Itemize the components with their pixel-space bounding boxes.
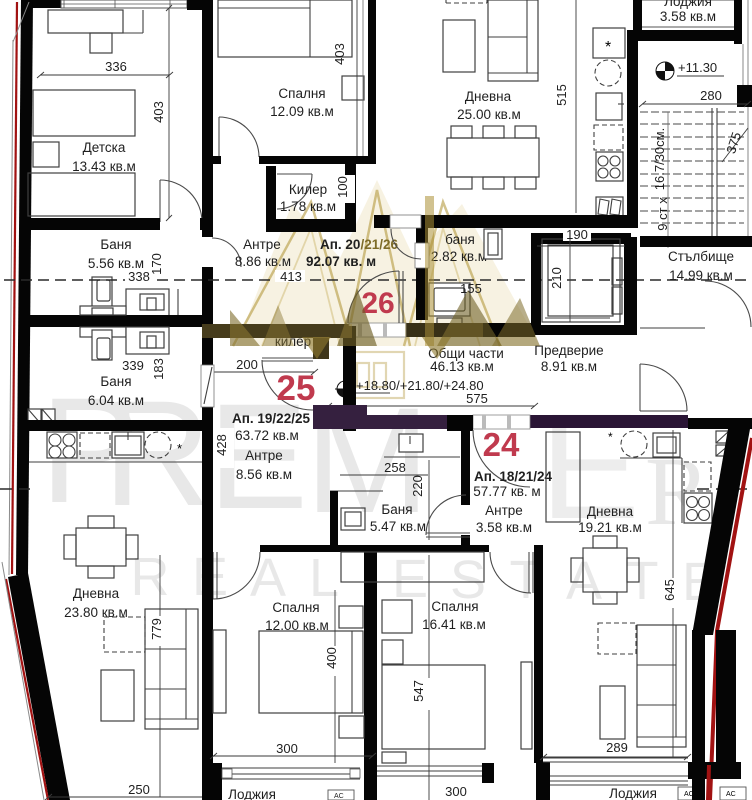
- svg-text:Ап. 20/21/26: Ап. 20/21/26: [320, 237, 398, 252]
- svg-text:8.91 кв.м: 8.91 кв.м: [541, 359, 597, 374]
- svg-text:9 ст x: 9 ст x: [655, 197, 670, 231]
- svg-text:Спалня: Спалня: [431, 599, 478, 614]
- svg-text:5.47 кв.м: 5.47 кв.м: [370, 519, 426, 534]
- svg-text:190: 190: [566, 227, 588, 242]
- svg-text:Спалня: Спалня: [278, 86, 325, 101]
- svg-text:63.72 кв.м: 63.72 кв.м: [235, 428, 299, 443]
- svg-text:19.21 кв.м: 19.21 кв.м: [578, 520, 642, 535]
- svg-text:25: 25: [277, 369, 316, 408]
- svg-text:210: 210: [549, 267, 564, 289]
- svg-text:Стълбище: Стълбище: [668, 249, 734, 264]
- svg-text:428: 428: [214, 434, 229, 456]
- svg-text:*: *: [608, 430, 613, 444]
- svg-text:T: T: [626, 551, 659, 611]
- svg-text:25.00 кв.м: 25.00 кв.м: [457, 107, 521, 122]
- svg-text:645: 645: [662, 579, 677, 601]
- svg-text:Ап. 19/22/25: Ап. 19/22/25: [232, 411, 310, 426]
- svg-text:*: *: [177, 441, 182, 456]
- svg-text:338: 338: [128, 269, 150, 284]
- svg-text:Лоджия: Лоджия: [228, 787, 276, 800]
- svg-text:Дневна: Дневна: [465, 89, 512, 104]
- svg-text:14.99 кв.м: 14.99 кв.м: [669, 268, 733, 283]
- svg-text:Баня: Баня: [381, 502, 412, 517]
- svg-text:250: 250: [128, 782, 150, 797]
- svg-text:1.78 кв.м: 1.78 кв.м: [280, 199, 336, 214]
- svg-text:Антре: Антре: [485, 503, 523, 518]
- svg-text:A: A: [250, 548, 286, 608]
- svg-text:100: 100: [335, 176, 350, 198]
- svg-text:3.58 кв.м: 3.58 кв.м: [660, 9, 716, 24]
- svg-text:170: 170: [149, 253, 164, 275]
- svg-text:Килер: Килер: [289, 182, 327, 197]
- svg-text:23.80 кв.м: 23.80 кв.м: [64, 605, 128, 620]
- svg-text:*: *: [605, 39, 611, 56]
- svg-text:+18.80/+21.80/+24.80: +18.80/+21.80/+24.80: [356, 378, 484, 393]
- svg-text:515: 515: [554, 84, 569, 106]
- svg-text:92.07 кв. м: 92.07 кв. м: [306, 254, 376, 269]
- svg-text:12.09 кв.м: 12.09 кв.м: [270, 104, 334, 119]
- svg-text:547: 547: [411, 680, 426, 702]
- svg-text:Лоджия: Лоджия: [609, 786, 657, 800]
- svg-text:Антре: Антре: [245, 448, 283, 463]
- svg-text:16.41 кв.м: 16.41 кв.м: [422, 617, 486, 632]
- svg-text:280: 280: [700, 88, 722, 103]
- svg-text:Предверие: Предверие: [534, 343, 603, 358]
- svg-text:220: 220: [410, 475, 425, 497]
- svg-text:баня: баня: [445, 232, 475, 247]
- svg-text:Дневна: Дневна: [73, 586, 120, 601]
- svg-text:8.56 кв.м: 8.56 кв.м: [236, 467, 292, 482]
- svg-text:AC: AC: [726, 791, 736, 798]
- svg-text:339: 339: [122, 358, 144, 373]
- svg-text:Ап. 18/21/24: Ап. 18/21/24: [474, 469, 552, 484]
- svg-text:289: 289: [606, 740, 628, 755]
- svg-text:2.82 кв.м: 2.82 кв.м: [431, 249, 487, 264]
- svg-text:413: 413: [280, 269, 302, 284]
- svg-text:300: 300: [445, 784, 467, 799]
- svg-text:+11.30: +11.30: [678, 60, 717, 75]
- svg-text:300: 300: [276, 741, 298, 756]
- svg-text:46.13 кв.м: 46.13 кв.м: [430, 359, 494, 374]
- svg-text:24: 24: [483, 426, 520, 463]
- svg-text:403: 403: [332, 43, 347, 65]
- svg-text:Дневна: Дневна: [587, 504, 634, 519]
- svg-text:16.7/30см.: 16.7/30см.: [652, 128, 667, 190]
- svg-text:Антре: Антре: [243, 237, 281, 252]
- svg-text:3.58 кв.м: 3.58 кв.м: [476, 520, 532, 535]
- svg-text:336: 336: [105, 59, 127, 74]
- svg-text:Баня: Баня: [100, 237, 131, 252]
- svg-text:8.86 кв.м: 8.86 кв.м: [235, 254, 291, 269]
- svg-text:403: 403: [151, 101, 166, 123]
- svg-text:155: 155: [460, 281, 482, 296]
- svg-text:L: L: [309, 548, 339, 608]
- svg-text:258: 258: [384, 460, 406, 475]
- svg-text:13.43 кв.м: 13.43 кв.м: [72, 159, 136, 174]
- svg-text:AC: AC: [334, 793, 344, 800]
- svg-text:575: 575: [466, 391, 488, 406]
- svg-text:Баня: Баня: [100, 374, 131, 389]
- svg-text:R: R: [131, 547, 170, 607]
- svg-text:183: 183: [151, 358, 166, 380]
- svg-text:6.04 кв.м: 6.04 кв.м: [88, 393, 144, 408]
- svg-text:400: 400: [324, 647, 339, 669]
- svg-text:Лоджия: Лоджия: [664, 0, 712, 9]
- svg-text:779: 779: [149, 618, 164, 640]
- svg-text:57.77 кв. м: 57.77 кв. м: [473, 484, 540, 499]
- svg-text:200: 200: [236, 357, 258, 372]
- svg-text:Детска: Детска: [83, 140, 126, 155]
- svg-text:Спалня: Спалня: [272, 600, 319, 615]
